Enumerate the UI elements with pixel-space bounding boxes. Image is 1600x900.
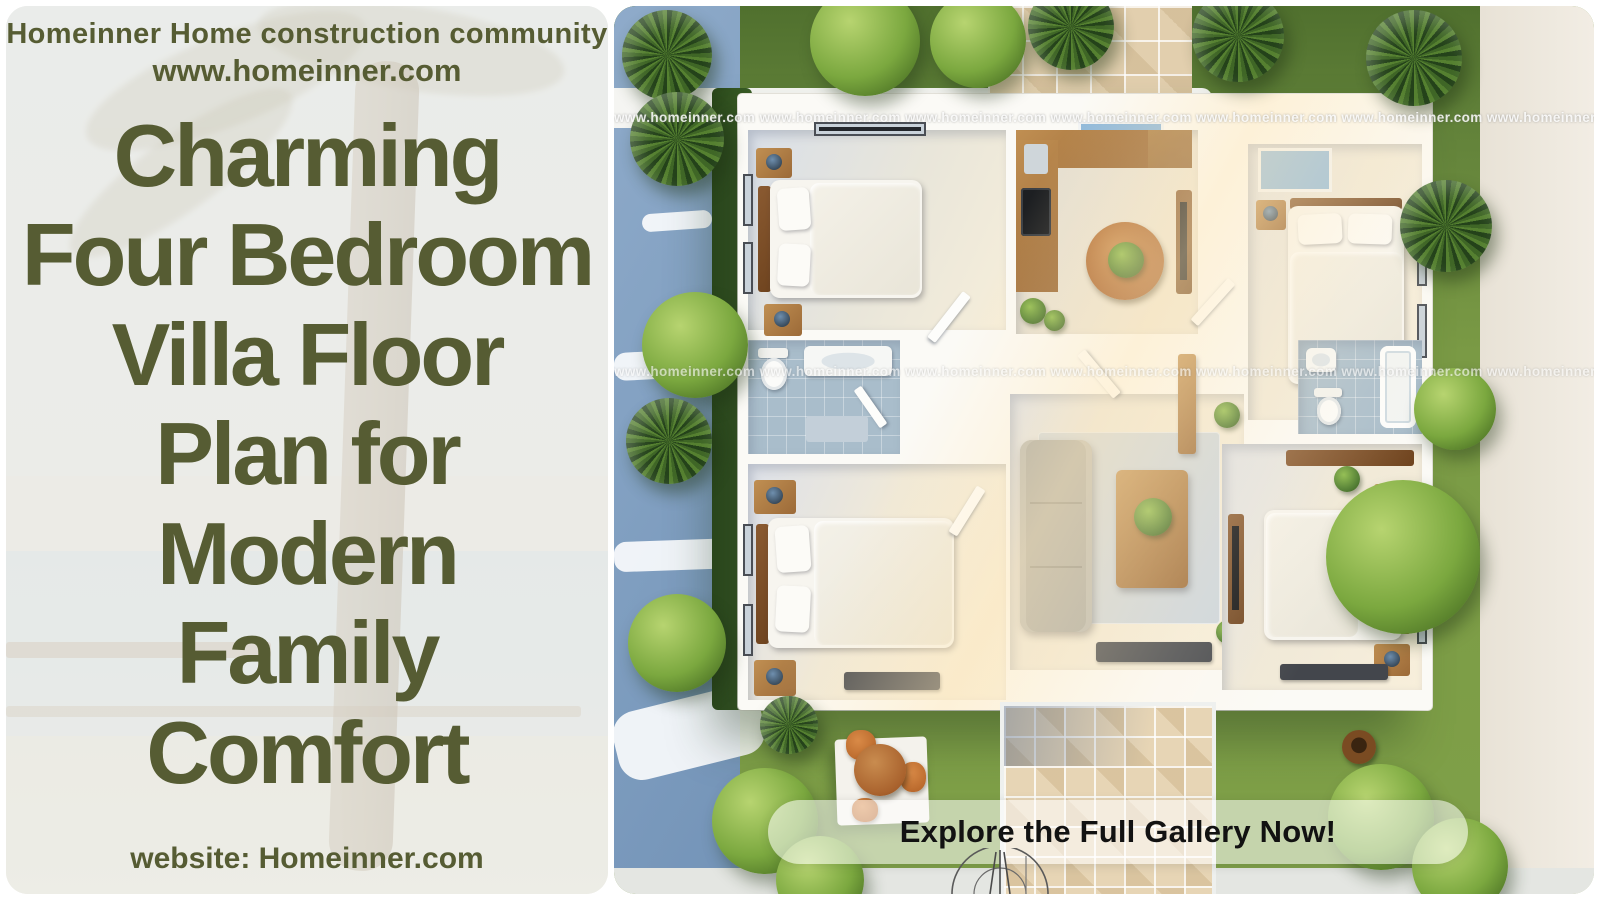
wall-shelf (1286, 450, 1414, 466)
tree (630, 92, 724, 186)
pillow (777, 243, 811, 287)
sofa-cushion-line (1030, 566, 1082, 568)
patio-table (854, 744, 906, 796)
floor-plant (1044, 310, 1065, 331)
large-tree (1326, 480, 1480, 634)
toilet (758, 348, 788, 358)
nightstand-decor (1263, 206, 1278, 221)
pillow (777, 187, 812, 231)
pillow (774, 525, 811, 573)
bed-duvet (810, 183, 920, 295)
shelf-plant (1334, 466, 1360, 492)
door-leaf (948, 485, 985, 536)
coffee-table-plant (1134, 498, 1172, 536)
side-walkway (1480, 6, 1594, 894)
watermark-row: www.homeinner.com www.homeinner.com www.… (614, 110, 1594, 125)
shower-cabin (1380, 346, 1416, 428)
bedroom-rug (1280, 664, 1388, 680)
bathroom-left (748, 340, 900, 454)
toilet (1317, 397, 1341, 425)
compass-line-art (940, 848, 1060, 894)
cooktop (1021, 188, 1051, 236)
left-text-panel: Homeinner Home construction community ww… (6, 6, 608, 894)
bedroom-rug (844, 672, 940, 690)
bedroom-top-left (748, 130, 1006, 330)
pillow (1347, 213, 1392, 245)
table-plant (1108, 242, 1144, 278)
bush (642, 292, 748, 398)
nightstand-decor (774, 311, 790, 327)
title-line: Comfort (6, 703, 608, 802)
window-icon (743, 604, 753, 656)
bush (1414, 368, 1496, 450)
pillow (775, 585, 811, 633)
tree (1400, 180, 1492, 272)
skylight-icon (1258, 148, 1332, 192)
window-icon (743, 524, 753, 576)
title-line: Four Bedroom (6, 205, 608, 304)
title-line: Modern (6, 504, 608, 603)
kitchen-sink (1024, 144, 1048, 174)
walkway-shadow (1004, 706, 1212, 766)
bush (760, 696, 818, 754)
title-line: Villa Floor (6, 305, 608, 404)
page-title: Charming Four Bedroom Villa Floor Plan f… (6, 106, 608, 802)
nightstand-decor (766, 668, 783, 685)
kitchen-dining (1016, 130, 1198, 334)
sofa (1020, 440, 1092, 632)
bathroom-right (1298, 340, 1422, 434)
door-leaf (927, 291, 971, 343)
brand-header: Homeinner Home construction community ww… (6, 18, 608, 89)
window-icon (743, 174, 753, 226)
window-icon (743, 242, 753, 294)
promo-poster: Homeinner Home construction community ww… (0, 0, 1600, 900)
title-line: Family (6, 603, 608, 702)
tree (626, 398, 712, 484)
villa-house (738, 94, 1432, 710)
nightstand-decor (766, 154, 782, 170)
tv-screen (1180, 202, 1187, 280)
bush (628, 594, 726, 692)
title-line: Charming (6, 106, 608, 205)
cta-banner[interactable]: Explore the Full Gallery Now! (768, 800, 1468, 864)
brand-community-line: Homeinner Home construction community (6, 18, 608, 51)
website-footer: website: Homeinner.com (6, 842, 608, 876)
corner-plant (1214, 402, 1240, 428)
kitchen-cabinet (1148, 130, 1192, 168)
floor-plant (1020, 298, 1046, 324)
nightstand-decor (766, 487, 783, 504)
fire-pit (1342, 730, 1376, 764)
floor-plan-render: www.homeinner.com www.homeinner.com www.… (614, 6, 1594, 894)
pillow (1297, 213, 1343, 245)
tree (1366, 10, 1462, 106)
watermark-row: www.homeinner.com www.homeinner.com www.… (614, 364, 1594, 379)
toilet (1314, 388, 1342, 397)
living-room (1010, 394, 1244, 670)
bed-duvet (814, 521, 952, 645)
title-line: Plan for (6, 404, 608, 503)
entry-doormat (1096, 642, 1212, 662)
sofa-cushion-line (1030, 502, 1082, 504)
tv-screen (1232, 526, 1239, 610)
bath-mat (806, 416, 868, 442)
tree (622, 10, 712, 100)
bedroom-bottom-left (748, 464, 1006, 700)
brand-url-line: www.homeinner.com (6, 53, 608, 89)
cta-label: Explore the Full Gallery Now! (900, 814, 1336, 850)
